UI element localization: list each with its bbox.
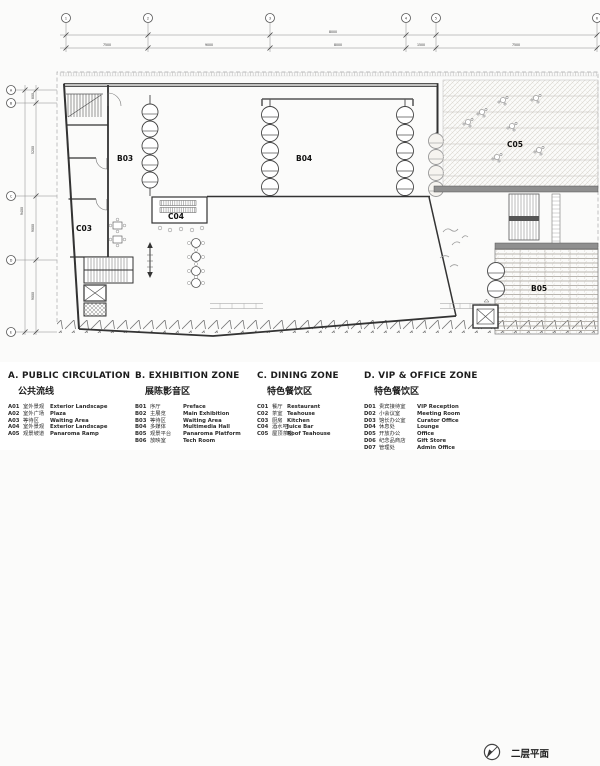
legend-subtitle: 公共流线 xyxy=(18,384,130,397)
square-tables xyxy=(109,218,126,247)
stair-top-left xyxy=(66,94,103,117)
bar-counter xyxy=(160,201,196,206)
svg-text:1500: 1500 xyxy=(417,43,425,47)
top-edge-strip xyxy=(60,73,598,77)
shaft-box xyxy=(84,303,106,316)
round-tables xyxy=(187,239,204,288)
ramp-arrow xyxy=(147,242,153,278)
svg-text:6: 6 xyxy=(596,17,598,21)
plan-name-label: 二层平面 xyxy=(511,746,549,760)
legend-item: C04酒水吧Juice Bar xyxy=(257,424,339,431)
svg-text:8000: 8000 xyxy=(329,30,337,34)
legend-item: D02小会议室Meeting Room xyxy=(364,411,478,418)
b05-zone: B05 xyxy=(473,243,598,334)
svg-text:5200: 5200 xyxy=(31,146,35,154)
top-wall xyxy=(64,84,438,87)
legend-title: B. EXHIBITION ZONE xyxy=(135,371,241,381)
legend-items: D01贵宾接待室VIP Reception D02小会议室Meeting Roo… xyxy=(364,404,478,452)
legend-section-vip-office-zone: D. VIP & OFFICE ZONE 特色餐饮区 D01贵宾接待室VIP R… xyxy=(364,362,478,452)
legend-subtitle: 特色餐饮区 xyxy=(374,384,478,397)
left-wing-rooms: C03 xyxy=(66,93,121,257)
legend-item: A05观景坡道Panaroma Ramp xyxy=(8,431,130,438)
dimension-labels-top: 8000 7500 9000 8000 1500 7500 xyxy=(103,30,520,47)
stair-right xyxy=(509,194,560,244)
legend-title: D. VIP & OFFICE ZONE xyxy=(364,371,478,381)
svg-text:5: 5 xyxy=(435,17,437,21)
door-arc xyxy=(96,158,107,169)
dimension-labels-left: 800 5200 9000 9000 9400 xyxy=(20,93,35,300)
svg-text:9400: 9400 xyxy=(20,207,24,215)
stair-landing xyxy=(509,216,539,221)
narrow-stair xyxy=(552,194,560,244)
c04-zone: C04 xyxy=(152,197,207,232)
svg-text:8000: 8000 xyxy=(334,43,342,47)
legend-item: C05屋顶茶座Roof Teahouse xyxy=(257,431,339,438)
legend-item: D06纪念品商店Gift Store xyxy=(364,438,478,445)
legend-items: C01餐厅Restaurant C02茶室Teahouse C03厨房Kitch… xyxy=(257,404,339,438)
legend-title: A. PUBLIC CIRCULATION xyxy=(8,371,130,381)
legend-item: C02茶室Teahouse xyxy=(257,411,339,418)
room-label-c04: C04 xyxy=(168,212,184,221)
svg-text:9000: 9000 xyxy=(205,43,213,47)
legend-section-dining-zone: C. DINING ZONE 特色餐饮区 C01餐厅Restaurant C02… xyxy=(257,362,339,438)
room-label-b05: B05 xyxy=(531,284,547,293)
c05-zone: C05 xyxy=(434,80,598,192)
svg-text:9000: 9000 xyxy=(31,292,35,300)
legend-item: B02主展览Main Exhibition xyxy=(135,411,241,418)
legend-items: A01室外景观Exterior Landscape A02室外广场Plaza A… xyxy=(8,404,130,438)
grid-bubbles-top: 1 2 3 4 5 6 xyxy=(62,14,600,23)
left-wall xyxy=(64,84,79,329)
legend-item: B05观景平台Panaroma Platform xyxy=(135,431,241,438)
legend-section-public-circulation: A. PUBLIC CIRCULATION 公共流线 A01室外景观Exteri… xyxy=(8,362,130,438)
legend-item: C03厨房Kitchen xyxy=(257,418,339,425)
svg-text:9000: 9000 xyxy=(31,224,35,232)
terrace-edge-band xyxy=(434,186,598,192)
b04-zone: B04 xyxy=(262,99,414,197)
door-arc xyxy=(108,93,121,106)
room-label-c05: C05 xyxy=(507,140,523,149)
top-dimension-grid: 1 2 3 4 5 6 8000 7500 9000 8000 1500 750… xyxy=(60,14,600,53)
legend-item: D01贵宾接待室VIP Reception xyxy=(364,404,478,411)
legend-item: B01序厅Preface xyxy=(135,404,241,411)
legend: A. PUBLIC CIRCULATION 公共流线 A01室外景观Exteri… xyxy=(0,362,600,450)
room-label-c03: C03 xyxy=(76,224,92,233)
building-shell xyxy=(64,84,456,337)
legend-subtitle: 特色餐饮区 xyxy=(267,384,339,397)
dotted-tables xyxy=(158,226,204,232)
grid-bubbles-left: A B C D E xyxy=(7,86,16,337)
stair-block-bottom-left xyxy=(84,257,133,316)
legend-items: B01序厅Preface B02主展览Main Exhibition B03等待… xyxy=(135,404,241,445)
svg-text:7500: 7500 xyxy=(103,43,111,47)
legend-item: B06放映室Tech Room xyxy=(135,438,241,445)
legend-subtitle: 展陈影音区 xyxy=(145,384,241,397)
svg-text:800: 800 xyxy=(31,93,35,99)
floor-plan-drawing: 1 2 3 4 5 6 8000 7500 9000 8000 1500 750… xyxy=(0,0,600,362)
legend-item: D05开放办公Office xyxy=(364,431,478,438)
legend-item: C01餐厅Restaurant xyxy=(257,404,339,411)
svg-text:3: 3 xyxy=(269,17,271,21)
svg-text:E: E xyxy=(10,331,12,335)
legend-item: D07管理处Admin Office xyxy=(364,445,478,452)
legend-item: A02室外广场Plaza xyxy=(8,411,130,418)
north-arrow-icon xyxy=(482,742,502,762)
legend-item: A01室外景观Exterior Landscape xyxy=(8,404,130,411)
room-label-b04: B04 xyxy=(296,154,312,163)
b03-zone: B03 xyxy=(117,95,158,196)
left-dimension-grid: A B C D E 800 5200 9000 9000 9400 xyxy=(7,85,58,337)
door-arc xyxy=(96,199,107,210)
svg-text:7500: 7500 xyxy=(512,43,520,47)
svg-text:2: 2 xyxy=(147,17,149,21)
svg-text:D: D xyxy=(10,259,13,263)
plan-caption: 二层平面 xyxy=(482,742,600,766)
platform-edge-band xyxy=(495,243,598,249)
room-label-b03: B03 xyxy=(117,154,133,163)
legend-title: C. DINING ZONE xyxy=(257,371,339,381)
floor-plan-sheet: { "plan": { "title": "二层平面", "rooms": { … xyxy=(0,0,600,450)
svg-text:4: 4 xyxy=(405,17,407,21)
svg-text:1: 1 xyxy=(65,17,67,21)
legend-section-exhibition-zone: B. EXHIBITION ZONE 展陈影音区 B01序厅Preface B0… xyxy=(135,362,241,445)
